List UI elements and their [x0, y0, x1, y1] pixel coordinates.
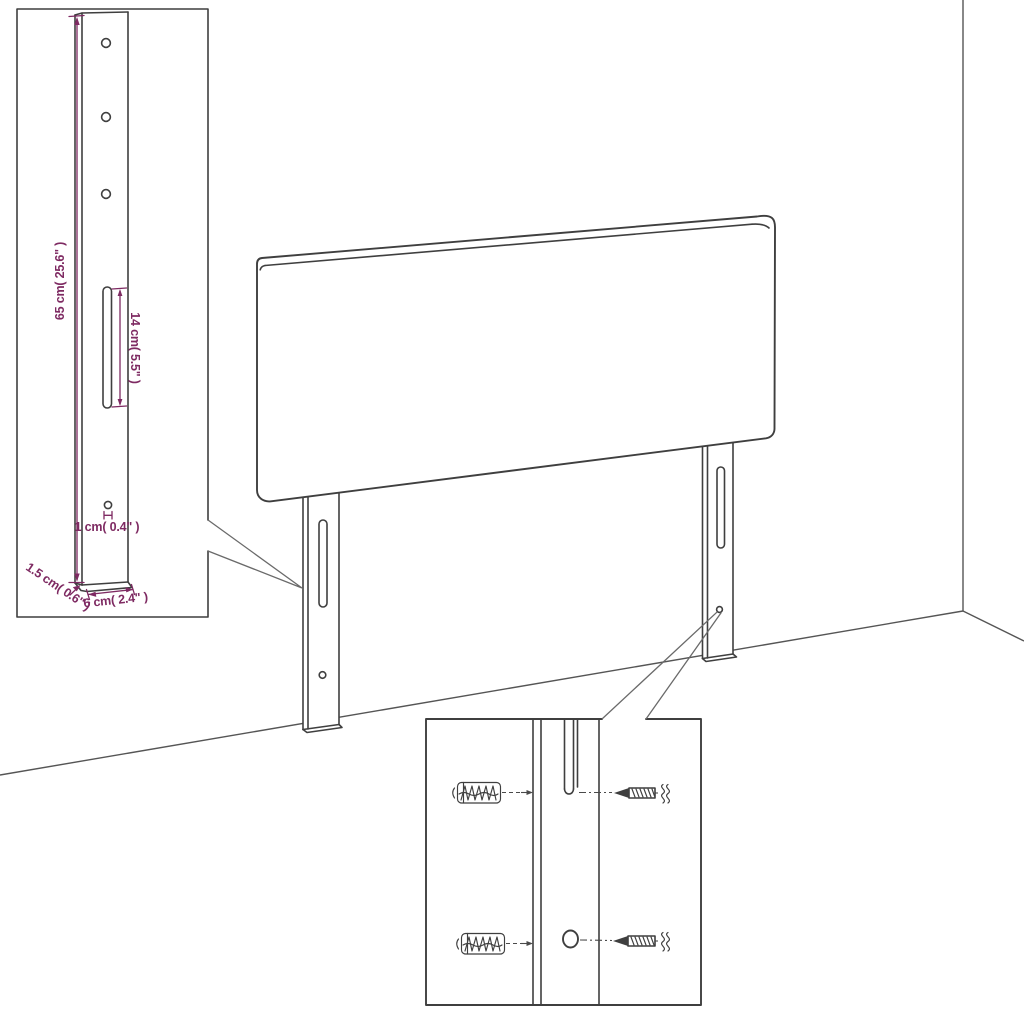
bracket-hole-1	[102, 39, 111, 48]
leg-closeup	[533, 720, 599, 1004]
closeup-hole	[563, 931, 578, 948]
bracket-inset-callout-lines	[208, 520, 302, 588]
mounting-inset-frame	[426, 719, 701, 1005]
anchor-pointer-arrow-bottom	[527, 941, 534, 946]
mounting-inset	[426, 612, 721, 1005]
dim-hole-label: 1 cm( 0.4" )	[75, 520, 140, 534]
bracket-drawing	[75, 12, 132, 592]
floor-line-right	[963, 611, 1024, 641]
dim-width-label: 6 cm( 2.4" )	[83, 590, 149, 611]
bracket-slot	[103, 287, 112, 408]
closeup-slot	[565, 720, 574, 789]
screw-icon-top	[614, 785, 669, 804]
diagram-canvas: 65 cm( 25.6" ) 14 cm( 5.5" ) 1 cm( 0.4" …	[0, 0, 1024, 1024]
right-leg	[703, 440, 737, 662]
bracket-small-hole	[104, 501, 111, 508]
floor-line-left	[0, 611, 963, 775]
anchor-pointer-arrow-top	[527, 790, 534, 795]
dim-slot-length: 14 cm( 5.5" )	[112, 288, 142, 407]
left-leg	[303, 489, 342, 733]
dim-height-label: 65 cm( 25.6" )	[53, 242, 67, 320]
wall-anchor-icon-bottom	[457, 934, 505, 955]
wall-anchor-icon-top	[453, 783, 501, 804]
dim-slot-length-label: 14 cm( 5.5" )	[128, 312, 142, 383]
headboard-panel	[257, 216, 775, 502]
headboard-dimension-diagram: 65 cm( 25.6" ) 14 cm( 5.5" ) 1 cm( 0.4" …	[0, 0, 1024, 1024]
dim-height: 65 cm( 25.6" )	[53, 16, 84, 583]
screw-icon-bottom	[613, 933, 669, 952]
headboard-outline	[257, 216, 775, 502]
bracket-hole-3	[102, 190, 111, 199]
dim-hole: 1 cm( 0.4" )	[75, 512, 140, 535]
bracket-hole-2	[102, 113, 111, 122]
